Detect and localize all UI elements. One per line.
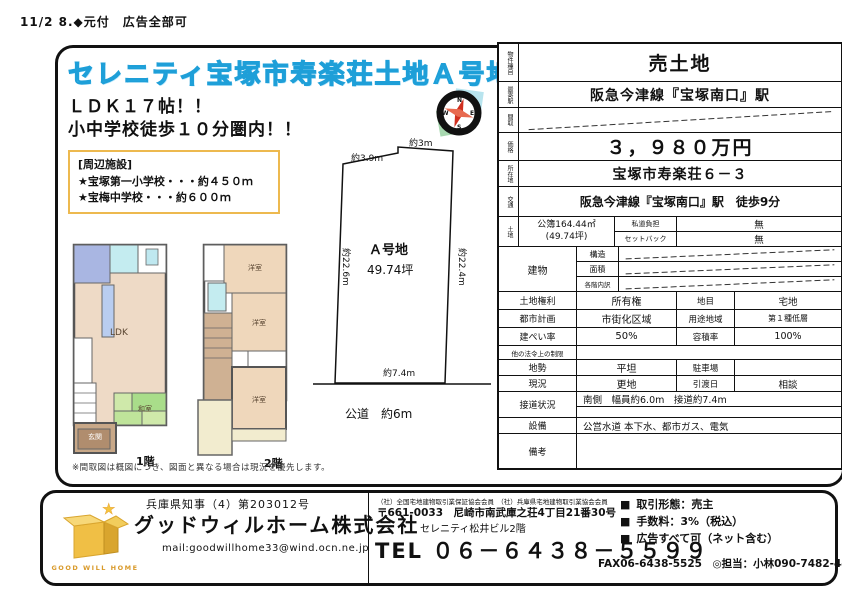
plot-edge-top-left: 約3.9m	[351, 152, 383, 164]
fee-line: ■手数料：3%（税込）	[620, 513, 743, 529]
spec-row-setsubi: 設備 公営水道 本下水、都市ガス、電気	[499, 418, 841, 434]
spec-row-property-type: 物件種目 売土地	[499, 44, 841, 82]
plot-diagram: 約3.9m 約3m 約22.6m 約22.4m 約7.4m Ａ号地 49.74坪…	[313, 138, 491, 438]
chisei-label: 地勢	[499, 360, 577, 375]
rights-value: 所有権	[577, 292, 677, 309]
address-label: 所在地	[499, 161, 519, 186]
svg-text:S: S	[457, 124, 461, 131]
plot-road-label: 公道 約6m	[345, 406, 412, 421]
deal-type-line: ■取引形態：売主	[620, 496, 713, 512]
spec-row-kenpei: 建ぺい率 50% 容積率 100%	[499, 328, 841, 346]
plot-edge-bottom: 約7.4m	[383, 367, 415, 379]
delivery-value: 相談	[735, 376, 841, 391]
spec-row-land: 土地 公簿164.44㎡ (49.74坪) 私道負担 無 セットバック 無	[499, 217, 841, 247]
room-2f-toilet	[208, 283, 226, 311]
room-toilet	[146, 249, 158, 265]
svg-text:N: N	[457, 97, 462, 104]
facilities-heading: [周辺施設]	[78, 157, 270, 174]
fee: 手数料：3%（税込）	[636, 515, 743, 528]
station-label: 最寄駅	[499, 82, 519, 107]
svg-text:E: E	[470, 110, 474, 117]
setsudo-value: 南側 幅員約6.0m 接道約7.4m	[577, 392, 841, 406]
closet-2f	[248, 351, 286, 367]
chisei-value: 平坦	[577, 360, 677, 375]
postal-address: 〒661-0033 尼崎市南武庫之荘4丁目21番30号	[377, 505, 616, 520]
spec-row-other-law: 他の法令上の制限	[499, 346, 841, 360]
spec-row-city-plan: 都市計画 市街化区域 用途地域 第１種低層	[499, 310, 841, 328]
svg-text:W: W	[442, 110, 449, 117]
kenpei-value: 50%	[577, 328, 677, 345]
setsudo-label: 接道状況	[499, 392, 577, 417]
building-name: セレニティ松井ビル2階	[420, 520, 526, 535]
square-bullet-icon: ■	[620, 532, 630, 545]
spec-row-access: 交通 阪急今津線『宝塚南口』駅 徒歩9分	[499, 187, 841, 217]
facilities-box: [周辺施設] ★宝塚第一小学校・・・約４５０ｍ ★宝梅中学校・・・約６００ｍ	[68, 150, 280, 214]
floorplan-1f	[72, 243, 168, 455]
stairs-2f	[204, 313, 232, 400]
spec-row-chisei: 地勢 平坦 駐車場	[499, 360, 841, 376]
private-road-label: 私道負担	[615, 217, 677, 231]
address-value: 宝塚市寿楽荘６－３	[519, 161, 841, 186]
yoseki-value: 100%	[735, 328, 841, 345]
plot-area: 49.74坪	[367, 263, 413, 277]
yoseki-label: 容積率	[677, 328, 735, 345]
ad-policy-line: ■広告すべて可（ネット含む）	[620, 530, 778, 546]
room-bath	[74, 245, 110, 283]
genkyo-value: 更地	[577, 376, 677, 391]
kenpei-label: 建ぺい率	[499, 328, 577, 345]
room-label-yoshitsu-2: 洋室	[252, 318, 266, 328]
setback-label: セットバック	[615, 232, 677, 246]
ad-policy: 広告すべて可（ネット含む）	[636, 532, 778, 545]
building-area-label: 面積	[577, 262, 619, 276]
city-plan-label: 都市計画	[499, 310, 577, 327]
room-label-genkan: 玄関	[88, 432, 102, 442]
square-bullet-icon: ■	[620, 515, 630, 528]
city-plan-value: 市街化区域	[577, 310, 677, 327]
delivery-label: 引渡日	[677, 376, 735, 391]
building-area-empty	[619, 262, 841, 276]
property-type-value: 売土地	[519, 44, 841, 81]
building-structure-label: 構造	[577, 247, 619, 261]
setback-value: 無	[677, 232, 841, 246]
floorplan-2f	[196, 243, 288, 461]
setsubi-label: 設備	[499, 418, 577, 433]
spec-table: 物件種目 売土地 最寄駅 阪急今津線『宝塚南口』駅 間取 価格 ３，９８０万円 …	[497, 42, 842, 470]
company-mail: mail:goodwillhome33@wind.ocn.ne.jp	[162, 543, 369, 554]
plot-edge-left: 約22.6m	[340, 248, 352, 286]
chimoku-label: 地目	[677, 292, 735, 309]
price-label: 価格	[499, 133, 519, 160]
deal-type: 取引形態：売主	[636, 498, 713, 511]
room-label-washitsu: 和室	[138, 404, 152, 414]
catch-line-2: 小中学校徒歩１０分圏内！！	[68, 115, 302, 140]
spec-row-building: 建物 構造 面積 各階内訳	[499, 247, 841, 292]
land-tsubo: (49.74坪)	[546, 232, 588, 244]
spec-row-price: 価格 ３，９８０万円	[499, 133, 841, 161]
price-value: ３，９８０万円	[519, 133, 841, 160]
genkyo-label: 現況	[499, 376, 577, 391]
other-law-label: 他の法令上の制限	[499, 346, 577, 359]
footer-divider	[368, 493, 369, 583]
plan-note: ※間取図は概図につき、図面と異なる場合は現況を優先します。	[72, 461, 330, 473]
rights-label: 土地権利	[499, 292, 577, 309]
spec-row-address: 所在地 宝塚市寿楽荘６－３	[499, 161, 841, 187]
private-road-value: 無	[677, 217, 841, 231]
page-header-note: 11/2 8.◆元付 広告全部可	[20, 13, 188, 30]
building-structure-empty	[619, 247, 841, 261]
land-label: 土地	[499, 217, 519, 246]
building-label: 建物	[499, 247, 577, 291]
station-value: 阪急今津線『宝塚南口』駅	[519, 82, 841, 107]
access-value: 阪急今津線『宝塚南口』駅 徒歩9分	[519, 187, 841, 216]
spec-row-setsudo: 接道状況 南側 幅員約6.0m 接道約7.4m	[499, 392, 841, 418]
parking-value	[735, 360, 841, 375]
logo-text: GOOD WILL HOME	[50, 564, 140, 572]
spec-row-genkyo: 現況 更地 引渡日 相談	[499, 376, 841, 392]
spec-row-rights: 土地権利 所有権 地目 宅地	[499, 292, 841, 310]
building-floors-empty	[619, 277, 841, 291]
plot-label: Ａ号地	[369, 242, 408, 258]
fax-contact: FAX06-6438-5525 ◎担当：小林090-7482-4405	[598, 556, 842, 571]
plot-edge-top-right: 約3m	[409, 138, 433, 149]
spec-row-biko: 備考	[499, 434, 841, 468]
catch-line-1: ＬＤＫ１７帖！！	[68, 92, 212, 117]
parking-label: 駐車場	[677, 360, 735, 375]
spec-row-station: 最寄駅 阪急今津線『宝塚南口』駅	[499, 82, 841, 108]
youto-value: 第１種低層	[735, 310, 841, 327]
chimoku-value: 宅地	[735, 292, 841, 309]
building-floors-label: 各階内訳	[577, 277, 619, 291]
compass-icon: N E S W	[430, 84, 488, 142]
square-bullet-icon: ■	[620, 498, 630, 511]
madori-label: 間取	[499, 108, 519, 132]
goodwill-box-icon: ★	[50, 496, 140, 564]
room-label-ldk: LDK	[110, 328, 128, 338]
svg-text:★: ★	[102, 500, 115, 518]
facility-item: ★宝梅中学校・・・約６００ｍ	[78, 190, 270, 207]
room-wash	[110, 245, 138, 273]
youto-label: 用途地域	[677, 310, 735, 327]
access-label: 交通	[499, 187, 519, 216]
plot-edge-right: 約22.4m	[456, 248, 468, 286]
biko-label: 備考	[499, 434, 577, 468]
room-label-yoshitsu-1: 洋室	[248, 263, 262, 273]
property-type-label: 物件種目	[499, 44, 519, 81]
company-logo: ★ GOOD WILL HOME	[50, 496, 140, 580]
facility-item: ★宝塚第一小学校・・・約４５０ｍ	[78, 174, 270, 191]
land-area: 公簿164.44㎡	[537, 220, 596, 232]
room-label-yoshitsu-3: 洋室	[252, 395, 266, 405]
setsubi-value: 公営水道 本下水、都市ガス、電気	[577, 418, 841, 433]
madori-value-empty	[519, 108, 841, 132]
balcony	[198, 400, 232, 455]
spec-row-madori: 間取	[499, 108, 841, 133]
biko-value	[577, 434, 841, 468]
other-law-value	[577, 346, 841, 359]
